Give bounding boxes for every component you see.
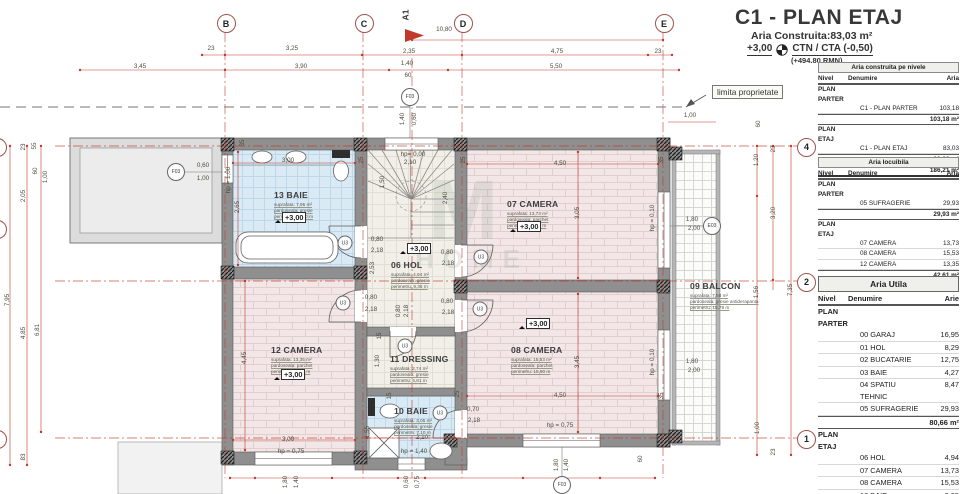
- dim-label: 2,53: [370, 262, 376, 274]
- table-row: 07 CAMERA13,73: [818, 465, 959, 477]
- : [818, 249, 848, 258]
- : [818, 115, 848, 124]
- section-name: PLAN ETAJ: [818, 125, 848, 144]
- : [848, 210, 923, 219]
- room-name: 06 HOL: [391, 260, 422, 270]
- room-name: 11 DRESSING: [390, 354, 449, 364]
- grid-bubble-partial: [0, 220, 7, 239]
- room-detail: perimetru: 15,90 m: [511, 369, 562, 375]
- dim-label: 3,00: [282, 437, 294, 443]
- table-row: 05 SUFRAGERIE29,93: [818, 199, 959, 209]
- dim-label: 0,80: [396, 305, 402, 317]
- dim-label: hp= 0,00: [401, 152, 426, 158]
- : [818, 354, 848, 365]
- cell-denumire: 05 SUFRAGERIE: [848, 403, 923, 414]
- opening-tag: F03: [167, 163, 185, 181]
- cell-denumire: 02 BUCATARIE: [848, 354, 923, 365]
- opening-tag: U3: [336, 296, 351, 311]
- cell-denumire: 08 CAMERA: [848, 249, 923, 258]
- subtotal-value: 29,93 m²: [923, 210, 959, 219]
- dim-label: 1,55: [365, 426, 371, 438]
- table-section-row: PLAN ETAJ: [818, 428, 959, 452]
- table-row: 01 HOL8,29: [818, 342, 959, 354]
- room-detail: suprafata: 7,95 m²: [274, 202, 313, 208]
- col-nivel: Nivel: [818, 293, 848, 304]
- cell-denumire: 03 BAIE: [848, 367, 923, 378]
- dim-label: 0,75: [415, 476, 421, 488]
- : [818, 490, 848, 494]
- room-detail: suprafata: 4,94 m²: [391, 272, 430, 278]
- level-box: +3,00: [282, 212, 306, 223]
- cell-aria: 3,05: [923, 490, 959, 494]
- dim-label: 0,80: [365, 295, 377, 301]
- col-denumire: Denumire: [848, 169, 923, 178]
- dim-label: 1,80: [283, 476, 289, 488]
- : [818, 452, 848, 463]
- dim-label: 60: [404, 73, 411, 79]
- : [923, 220, 959, 239]
- area-table: Aria UtilaNivelDenumireAriePLAN PARTER00…: [818, 276, 959, 494]
- cell-aria: 13,73: [923, 465, 959, 476]
- grid-bubble: 1: [797, 430, 816, 449]
- table-row: 00 GARAJ16,95: [818, 329, 959, 341]
- dim-label: 2,65: [235, 201, 241, 213]
- dim-label: 4,75: [551, 49, 563, 55]
- dim-label: 2,18: [442, 261, 454, 267]
- cell-aria: 83,03: [923, 144, 959, 153]
- grid-bubble: 2: [797, 273, 816, 292]
- dim-label: 1,00: [197, 176, 209, 182]
- : [923, 125, 959, 144]
- level-box: +3,00: [526, 318, 550, 329]
- room-detail: pardoseala: gresie: [391, 278, 430, 284]
- room-name: 08 CAMERA: [511, 345, 562, 355]
- col-denumire: Denumire: [848, 293, 923, 304]
- dim-label: 0,80: [371, 237, 383, 243]
- dim-label: 0,60: [197, 163, 209, 169]
- table-subtotal-row: 29,93 m²: [818, 209, 959, 219]
- dim-label: 23: [771, 448, 777, 455]
- table-section-row: PLAN PARTER: [818, 305, 959, 329]
- dim-label: 2,00: [688, 368, 700, 374]
- : [848, 85, 923, 104]
- cell-denumire: 00 GARAJ: [848, 329, 923, 340]
- dim-label: 0,70: [467, 407, 479, 413]
- dim-label: 0,80: [441, 250, 453, 256]
- dim-label: 10,80: [436, 27, 452, 33]
- table-title: Aria Utila: [818, 276, 959, 292]
- cell-denumire: 04 SPATIU TEHNIC: [848, 379, 923, 402]
- col-denumire: Denumire: [848, 74, 923, 83]
- grid-bubble: E: [655, 14, 674, 33]
- dim-label: 3,00: [282, 158, 294, 164]
- section-name: PLAN PARTER: [818, 180, 848, 199]
- cell-aria: 13,73: [923, 239, 959, 248]
- dim-label: 6,81: [35, 324, 41, 336]
- cell-aria: 8,29: [923, 342, 959, 353]
- opening-tag: U3: [338, 236, 353, 251]
- dim-label: 25: [461, 156, 467, 163]
- table-section-row: PLAN ETAJ: [818, 219, 959, 239]
- cell-aria: 15,53: [923, 477, 959, 488]
- table-subtotal-row: 103,18 m²: [818, 114, 959, 124]
- dim-label: 60: [756, 120, 762, 127]
- grid-bubble: B: [217, 14, 236, 33]
- : [818, 104, 848, 113]
- : [818, 329, 848, 340]
- room-detail: perimetru: 7,10 m: [394, 430, 433, 436]
- dim-label: 15: [387, 392, 393, 399]
- : [923, 85, 959, 104]
- table-row: 12 CAMERA13,35: [818, 260, 959, 270]
- dim-label: 2,18: [468, 418, 480, 424]
- table-section-row: PLAN ETAJ: [818, 124, 959, 144]
- table-row: 04 SPATIU TEHNIC8,47: [818, 379, 959, 403]
- section-name: PLAN PARTER: [818, 306, 848, 329]
- dim-label: 35: [659, 156, 665, 163]
- room-detail: perimetru: 6,81 m: [390, 378, 449, 384]
- table-row: 08 CAMERA15,53: [818, 249, 959, 259]
- dim-label: 1,00: [43, 171, 49, 183]
- room-detail: pardoseala: gresie antiderapanta: [690, 299, 759, 305]
- table-section-row: PLAN PARTER: [818, 179, 959, 199]
- dim-label: 2,10: [416, 435, 428, 441]
- dim-label: 3,45: [134, 64, 146, 70]
- dim-label: 35: [659, 392, 665, 399]
- cell-denumire: 05 SUFRAGERIE: [848, 199, 923, 208]
- grid-bubble: D: [454, 14, 473, 33]
- cell-denumire: C1 - PLAN ETAJ: [848, 144, 923, 153]
- opening-tag: U3: [433, 406, 448, 421]
- dim-label: 23: [654, 49, 661, 55]
- dim-label: 1,40: [401, 61, 413, 67]
- level-box: +3,00: [517, 221, 541, 232]
- dim-label: 23: [207, 46, 214, 52]
- room-name: 12 CAMERA: [271, 345, 322, 355]
- dim-label: 7,95: [5, 294, 11, 306]
- dim-label: 83: [21, 453, 27, 460]
- table-row: 10 BAIE3,05: [818, 490, 959, 494]
- dim-label: 4,85: [21, 327, 27, 339]
- dim-label: 3,25: [286, 46, 298, 52]
- dim-label: 4,45: [242, 352, 248, 364]
- room-detail: perimetru: 15,78 m: [690, 305, 759, 311]
- : [923, 306, 959, 329]
- dim-label: 2,18: [365, 307, 377, 313]
- dim-label: 1,50: [380, 176, 386, 188]
- dim-label: 2,18: [404, 305, 410, 317]
- room-name: 07 CAMERA: [507, 199, 558, 209]
- dim-label: 1,00: [755, 422, 761, 434]
- dim-label: 3,90: [295, 64, 307, 70]
- : [818, 379, 848, 402]
- dim-label: hp = 1,40: [401, 449, 427, 455]
- cell-denumire: 08 CAMERA: [848, 477, 923, 488]
- cell-denumire: 01 HOL: [848, 342, 923, 353]
- dim-label: 2,18: [371, 248, 383, 254]
- table-row: 06 HOL4,94: [818, 452, 959, 464]
- dim-label: 23: [21, 143, 27, 150]
- cell-denumire: 06 HOL: [848, 452, 923, 463]
- : [818, 239, 848, 248]
- room-label: 09 BALCONsuprafata: 7,58 m²pardoseala: g…: [690, 277, 759, 311]
- dim-label: 0,60: [404, 476, 410, 488]
- : [818, 199, 848, 208]
- annotation-layer: BCDE42110,80233,252,354,75233,453,901,40…: [0, 0, 967, 494]
- room-detail: pardoseala: gresie: [394, 424, 433, 430]
- dim-label: 15: [377, 332, 383, 339]
- table-section-row: PLAN PARTER: [818, 84, 959, 104]
- dim-label: 4,50: [554, 393, 566, 399]
- table-row: 03 BAIE4,27: [818, 367, 959, 379]
- dim-label: 1,30: [375, 355, 381, 367]
- dim-label: 7,35: [788, 284, 794, 296]
- section-name: PLAN PARTER: [818, 85, 848, 104]
- : [848, 417, 923, 428]
- table-header-row: NivelDenumireArie: [818, 293, 959, 305]
- col-nivel: Nivel: [818, 74, 848, 83]
- dim-label: 25: [455, 390, 461, 397]
- room-label: 11 DRESSINGsuprafata: 2,74 m²pardoseala:…: [390, 350, 449, 384]
- : [818, 144, 848, 153]
- room-detail: perimetru: 9,36 m: [391, 284, 430, 290]
- opening-tag: F03: [401, 88, 419, 106]
- dim-label: 1,20: [754, 154, 760, 166]
- area-table: Aria locuibilaNivelDenumireAriaPLAN PART…: [818, 157, 959, 292]
- cell-aria: 15,53: [923, 249, 959, 258]
- table-row: 07 CAMERA13,73: [818, 239, 959, 249]
- opening-tag: E03: [703, 217, 721, 235]
- dim-label: 1,40: [400, 113, 406, 125]
- dim-label: 2,00: [688, 226, 700, 232]
- table-header-row: NivelDenumireAria: [818, 74, 959, 84]
- cell-aria: 29,93: [923, 199, 959, 208]
- : [923, 180, 959, 199]
- level-box: +3,00: [281, 369, 305, 380]
- : [818, 342, 848, 353]
- dim-label: 1,80: [686, 359, 698, 365]
- : [818, 465, 848, 476]
- subtotal-value: 103,18 m²: [923, 115, 959, 124]
- cell-aria: 8,47: [923, 379, 959, 402]
- dim-label: 2,18: [442, 310, 454, 316]
- grid-bubble: 4: [797, 138, 816, 157]
- table-row: 05 SUFRAGERIE29,93: [818, 403, 959, 415]
- cell-aria: 16,95: [923, 329, 959, 340]
- : [818, 477, 848, 488]
- room-label: 08 CAMERAsuprafata: 15,53 m²pardoseala: …: [511, 341, 562, 375]
- dim-label: 4,50: [554, 161, 566, 167]
- dim-label: 1,00: [684, 113, 696, 119]
- opening-tag: U3: [474, 250, 489, 265]
- opening-tag: U3: [398, 339, 413, 354]
- subtotal-value: 80,66 m²: [923, 417, 959, 428]
- : [848, 429, 923, 452]
- : [848, 180, 923, 199]
- dim-label: 2,35: [403, 49, 415, 55]
- table-row: C1 - PLAN ETAJ83,03: [818, 144, 959, 154]
- grid-bubble: C: [355, 14, 374, 33]
- table-title: Aria construita pe nivele: [818, 62, 959, 73]
- opening-tag: F03: [553, 476, 571, 494]
- dim-label: 23: [771, 145, 777, 152]
- dim-label: 1,80: [554, 459, 560, 471]
- room-label: 10 BAIEsuprafata: 3,05 m²pardoseala: gre…: [394, 402, 433, 436]
- dim-label: 1,40: [564, 459, 570, 471]
- table-title: Aria locuibila: [818, 157, 959, 168]
- cell-aria: 4,94: [923, 452, 959, 463]
- cell-denumire: 07 CAMERA: [848, 465, 923, 476]
- dim-label: 2,10: [404, 160, 416, 166]
- dim-label: 1,80: [686, 217, 698, 223]
- dim-label: hp = 0,10: [650, 349, 656, 375]
- cell-denumire: 12 CAMERA: [848, 260, 923, 269]
- dim-label: 1,40: [294, 476, 300, 488]
- cell-aria: 13,35: [923, 260, 959, 269]
- dim-label: 0,60: [412, 113, 418, 125]
- : [818, 260, 848, 269]
- : [818, 403, 848, 414]
- dim-label: 35: [240, 139, 246, 146]
- dim-label: hp = 1,00: [226, 167, 232, 193]
- : [848, 306, 923, 329]
- dim-label: 25: [359, 156, 365, 163]
- room-label: 06 HOLsuprafata: 4,94 m²pardoseala: gres…: [391, 256, 430, 290]
- dim-label: hp = 0,75: [547, 423, 573, 429]
- room-detail: suprafata: 3,05 m²: [394, 418, 433, 424]
- : [923, 429, 959, 452]
- table-row: 02 BUCATARIE12,75: [818, 354, 959, 366]
- opening-tag: U3: [473, 302, 488, 317]
- cell-aria: 4,27: [923, 367, 959, 378]
- : [818, 367, 848, 378]
- col-aria: Aria: [923, 74, 959, 83]
- cell-denumire: 10 BAIE: [848, 490, 923, 494]
- : [818, 210, 848, 219]
- table-row: 08 CAMERA15,53: [818, 477, 959, 489]
- grid-bubble-partial: [0, 138, 7, 157]
- dim-label: 3,05: [575, 207, 581, 219]
- dim-label: hp = 0,10: [650, 205, 656, 231]
- room-name: 13 BAIE: [274, 190, 308, 200]
- section-name: PLAN ETAJ: [818, 429, 848, 452]
- table-header-row: NivelDenumireAria: [818, 169, 959, 179]
- dim-label: 60: [33, 167, 39, 174]
- cell-aria: 103,18: [923, 104, 959, 113]
- dim-label: 2,40: [443, 192, 449, 204]
- table-subtotal-row: 80,66 m²: [818, 416, 959, 428]
- cell-aria: 12,75: [923, 354, 959, 365]
- cell-denumire: 07 CAMERA: [848, 239, 923, 248]
- section-name: PLAN ETAJ: [818, 220, 848, 239]
- room-name: 10 BAIE: [394, 406, 428, 416]
- col-aria: Aria: [923, 169, 959, 178]
- cell-aria: 29,93: [923, 403, 959, 414]
- cell-denumire: C1 - PLAN PARTER: [848, 104, 923, 113]
- dim-label: hp = 0,75: [278, 449, 304, 455]
- dim-label: 3,45: [575, 356, 581, 368]
- room-name: 09 BALCON: [690, 281, 741, 291]
- dim-label: 2,05: [21, 190, 27, 202]
- : [848, 115, 923, 124]
- : [818, 417, 848, 428]
- level-box: +3,00: [407, 243, 431, 254]
- : [848, 125, 923, 144]
- grid-bubble-partial: [0, 430, 7, 449]
- col-aria: Arie: [923, 293, 959, 304]
- table-row: C1 - PLAN PARTER103,18: [818, 104, 959, 114]
- : [848, 220, 923, 239]
- dim-label: 5,50: [550, 64, 562, 70]
- dim-label: 55: [32, 142, 38, 149]
- dim-label: 0,80: [441, 299, 453, 305]
- dim-label: 3,20: [771, 207, 777, 219]
- dim-label: 60: [638, 455, 644, 462]
- col-nivel: Nivel: [818, 169, 848, 178]
- floor-plan-sheet: M HOME C1 - PLAN ETAJ Aria Construita:83…: [0, 0, 967, 494]
